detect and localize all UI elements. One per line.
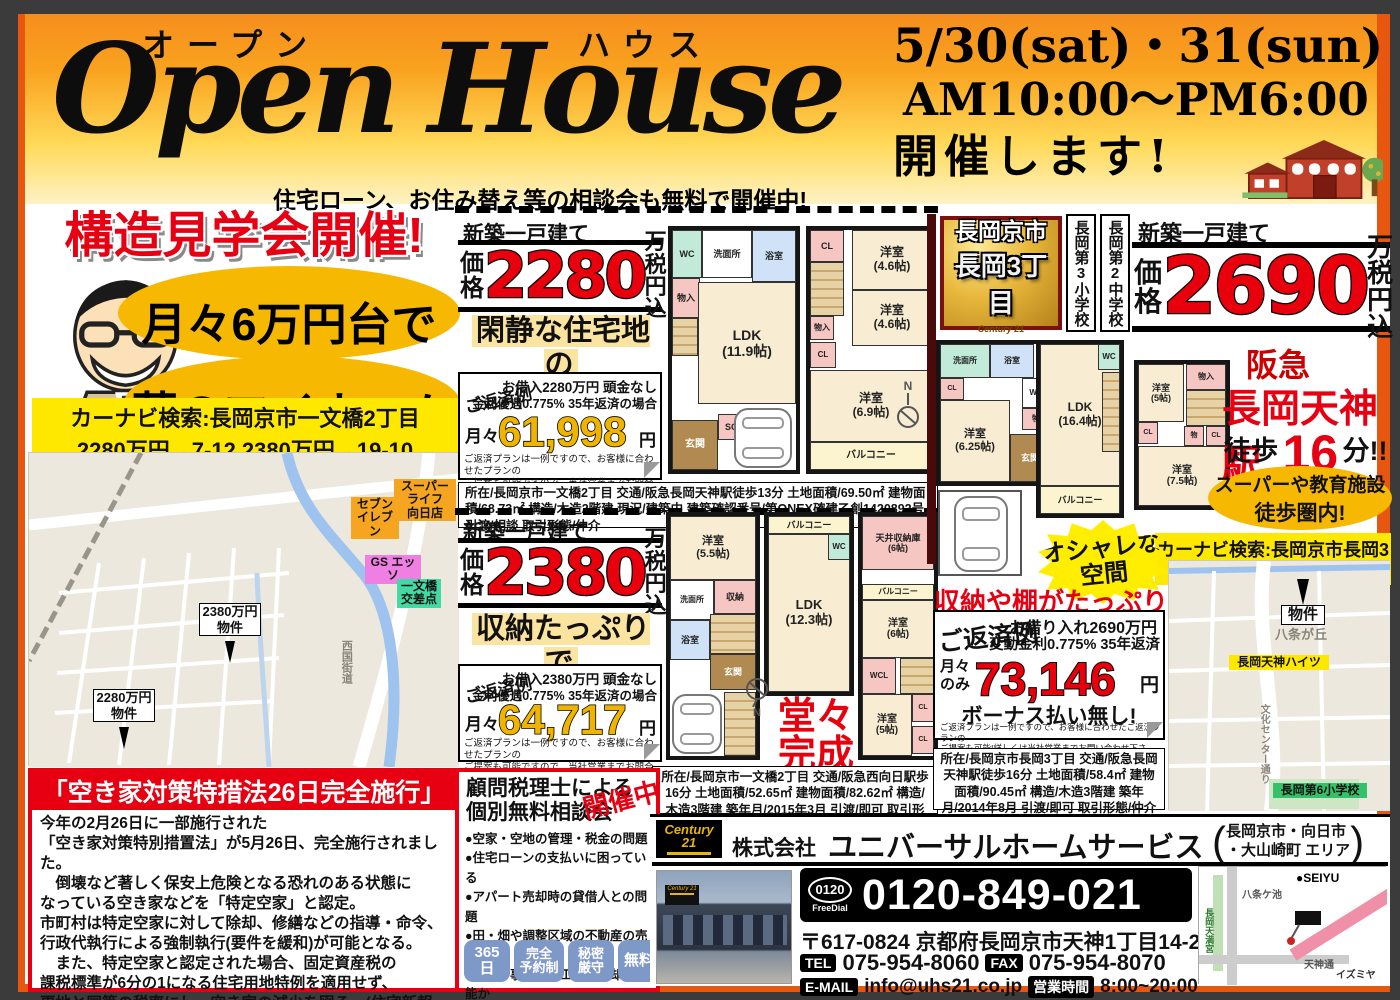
tax-bullet: ●空家・空地の管理・税金の問題 [465, 830, 650, 849]
p2-floorplan-left: 洋室 (5.5帖) 洗面所 収納 浴室 玄関 [666, 512, 760, 760]
floorplan-room: 浴室 [990, 344, 1034, 378]
house-icon [1233, 138, 1383, 205]
carnavi-box-1: カーナビ検索:長岡京市一文橋2丁目 2280万円→7-12 2380万円→19-… [32, 398, 458, 452]
vacant-house-article: 「空き家対策特措法26日完全施行」 今年の2月26日に一部施行された 「空き家対… [28, 768, 460, 992]
floorplan-room: 洋室 (4.6帖) [852, 290, 932, 346]
structure-tour-banner: 構造見学会開催! [28, 212, 460, 261]
century21-logo: Century 21 [656, 820, 722, 858]
p3-price-unit-1: 万税 [1367, 234, 1393, 287]
company-mini-map: ●SEIYU 八条ケ池 長岡天満宮 天神通 イズミヤ [1198, 866, 1386, 984]
floorplan-room: 洋室 (5帖) [862, 694, 912, 756]
badge-365: 365 日 [464, 940, 510, 982]
p3-area-line-1: 長岡京市 [955, 212, 1047, 246]
p2-price-block: 価格 2380 万税 円込 [458, 538, 662, 608]
dashed-divider [455, 206, 938, 213]
mini-map-seiyu: ●SEIYU [1293, 871, 1342, 886]
p2-price-label: 価格 [460, 548, 484, 598]
map-label-school6: 長岡第6小学校 [1273, 783, 1367, 798]
paren-close: ) [1350, 818, 1364, 866]
p2-price-units: 万税 円込 [645, 528, 667, 618]
header-time: AM10:00〜PM6:00 [903, 76, 1369, 123]
floorplan-stairs [672, 318, 698, 356]
map-label-seven-eleven: セブン イレブン [351, 497, 399, 539]
p2-monthly-amount: 64,717 [498, 696, 626, 744]
p3-super-copy: スーパーや教育施設 徒歩圏内! [1204, 470, 1396, 527]
company-area-text: 長岡京市・向日市 ・大山崎町 エリア [1226, 823, 1350, 861]
article-line: 倒壊など著しく保安上危険となる恐れのある状態に [40, 874, 448, 894]
area-map-nagaoka: 物件 八条が丘 長岡天神ハイツ 文化センター通り 長岡第6小学校 [1168, 560, 1389, 810]
floorplan-room: バルコニー [862, 584, 934, 600]
map-pin-icon-2280 [119, 727, 129, 749]
p3-price-value: 2690 [1162, 248, 1367, 326]
p3-super-line-1: スーパーや教育施設 [1204, 470, 1396, 497]
floorplan-room: バルコニー [810, 442, 932, 470]
p3-price-unit-2: 円込 [1367, 287, 1393, 340]
email-hours-row: E-MAIL info@uhs21.co.jp 営業時間 8:00~20:00 [800, 976, 1198, 998]
floorplan-room: 浴室 [670, 620, 710, 660]
floorplan-room: WC [672, 230, 702, 278]
map-label-super-life: スーパーライフ 向日店 [394, 479, 456, 521]
floorplan-stairs [1186, 390, 1226, 426]
floorplan-room: CL [912, 694, 934, 722]
floorplan-room: 洋室 (6.25帖) [940, 400, 1010, 482]
area-map-ichimonbashi: スーパーライフ 向日店 セブン イレブン GS エッソ 一文橋 交差点 西国街道… [28, 452, 458, 766]
floorplan-room: 洗面所 [702, 230, 752, 278]
floorplan-room: 洋室 (5.5帖) [670, 516, 756, 580]
floorplan-room: 物 [1184, 426, 1204, 446]
p2-details: 所在/長岡京市一文橋2丁目 交通/阪急西向日駅歩16分 土地面積/52.65㎡ … [652, 766, 938, 814]
hours-value: 8:00~20:00 [1100, 976, 1198, 998]
p3-monthly-amount: 73,146 [975, 652, 1116, 706]
floorplan-room: CL [940, 378, 964, 400]
article-line: また、特定空家と認定された場合、固定資産税の [40, 954, 448, 974]
map-label-road: 西国街道 [337, 639, 355, 685]
freedial-label: FreeDial [808, 903, 852, 913]
compass-icon: N [742, 676, 772, 720]
office-sign-text: Century 21 [665, 885, 699, 893]
floorplan-stairs [900, 658, 934, 694]
floorplan-room: 洋室 (5帖) [1138, 364, 1184, 422]
article-title: 「空き家対策特措法26日完全施行」 [32, 772, 456, 810]
page-curl-icon [644, 462, 660, 478]
p1-price-block: 価格 2280 万税 円込 [458, 240, 662, 312]
freedial-number: 0120-849-021 [862, 871, 1142, 920]
compass-n-label: N [904, 379, 913, 393]
p1-price-label: 価格 [460, 251, 484, 301]
mini-map-izumiya: イズミヤ [1333, 969, 1379, 982]
p1-loan-box: ご返済例 お借入2280万円 頭金なし 金利優遇0.775% 35年返済の場合 … [458, 372, 662, 480]
tax-bullet: ●住宅ローンの支払いに困っている [465, 849, 650, 888]
page-curl-icon [644, 744, 660, 760]
office-windows [663, 915, 787, 945]
frame-left-strip [18, 14, 25, 992]
map-roads-graphic [1169, 561, 1390, 811]
article-line: 市町村は特定空家に対して除却、修繕などの指導・命令、 [40, 914, 448, 934]
map-label-heights: 長岡天神ハイツ [1229, 655, 1329, 670]
map-label-street: 文化センター通り [1255, 689, 1272, 799]
floorplan-room: 天井収納庫 (6帖) [862, 516, 934, 570]
page-curl-icon [1147, 722, 1163, 738]
p2-floorplan-mid: バルコニー LDK (12.3帖) WC [764, 512, 854, 696]
fax-number: 075-954-8070 [1029, 950, 1166, 976]
p3-floorplan-2f: LDK (16.4帖) WC バルコニー [1036, 340, 1124, 518]
office-photo: Century 21 [656, 870, 792, 984]
map-label-crossing: 一文橋 交差点 [397, 579, 441, 608]
map-label-hachijo: 八条が丘 [1261, 627, 1341, 644]
mini-map-pond: 八条ケ池 [1239, 889, 1285, 902]
header-title-house: House [428, 28, 842, 152]
p2-monthly-yen: 円 [639, 714, 656, 739]
article-line: 今年の2月26日に一部施行された [40, 814, 448, 834]
p3-walk-pre: 徒歩 [1224, 436, 1278, 466]
p2-completed-label: 堂々 完成 [778, 698, 854, 774]
tax-advisor-box: 顧問税理士による 個別無料相談会 開催中 ●空家・空地の管理・税金の問題 ●住宅… [455, 768, 660, 992]
tel-badge: TEL [800, 954, 836, 972]
p2-floorplan-right: 天井収納庫 (6帖) バルコニー 洋室 (6帖) WCL 洋室 (5帖) CL … [858, 512, 938, 760]
header-date: 5/30(sat)・31(sun) [893, 22, 1383, 71]
floorplan-room: WCL [862, 658, 896, 694]
map-label-bukken: 物件 [1281, 605, 1325, 625]
floorplan-room: 洋室 (4.6帖) [852, 230, 932, 290]
compass-n-label: N [753, 707, 761, 719]
p1-price-value: 2280 [484, 245, 645, 307]
map-pin-label-2380: 2380万円 物件 [199, 603, 261, 636]
p3-loan-line-2: 変動金利0.775% 35年返済 [989, 633, 1160, 654]
p2-price-value: 2380 [484, 542, 645, 604]
floorplan-room: CL [912, 726, 934, 754]
floorplan-room: バルコニー [768, 516, 850, 534]
flyer-root: オープン Open ハウス House 5/30(sat)・31(sun) AM… [0, 0, 1400, 1000]
badge-reservation: 完全 予約制 [514, 940, 564, 982]
p3-school-elementary: 長岡第3小学校 [1066, 214, 1096, 332]
header-kaisai: 開催します! [893, 133, 1174, 180]
mini-map-street: 天神通 [1301, 959, 1337, 972]
floorplan-room: CL [810, 342, 836, 368]
fax-badge: FAX [985, 954, 1022, 972]
p3-price-label-text: 価格 [1134, 258, 1162, 317]
p3-walk-suf: 分!! [1343, 436, 1388, 466]
company-name-prefix: 株式会社 [732, 832, 816, 862]
office-sign: Century 21 [665, 885, 699, 905]
tel-number: 075-954-8060 [842, 950, 979, 976]
p3-price-block: 価格 2690 万税 円込 [1132, 242, 1390, 332]
map-pin-label-2280: 2280万円 物件 [93, 689, 155, 722]
p1-monthly-amount: 61,998 [498, 408, 626, 456]
article-line: なっている空き家などを「特定空家」と認定。 [40, 894, 448, 914]
floorplan-room: LDK (11.9帖) [698, 282, 796, 404]
floorplan-room: 洗面所 [670, 580, 714, 620]
map-pin-icon-bukken [1297, 579, 1309, 605]
p1-monthly-label: 月々 [465, 422, 499, 447]
floorplan-room: WC [1098, 344, 1120, 370]
p3-area-badge: 長岡京市 長岡3丁目 Century 21 [940, 216, 1062, 330]
century21-small-logo: Century 21 [978, 324, 1025, 334]
car-icon [954, 496, 1008, 572]
floorplan-room: CL [810, 230, 844, 262]
article-line: 「空き家対策特別措置法」が5月26日、完全施行されました。 [40, 834, 448, 874]
car-icon [734, 408, 792, 468]
company-name: ユニバーサルホームサービス [828, 824, 1204, 866]
floorplan-room: 収納 [714, 580, 756, 614]
p3-school-junior-high: 長岡第2中学校 [1100, 214, 1130, 332]
car-icon [672, 694, 722, 754]
p3-price-units: 万税 円込 [1367, 234, 1393, 340]
p3-price-label: 価格 [1134, 258, 1162, 317]
freedial-bar: 0120 FreeDial 0120-849-021 [800, 868, 1192, 922]
tax-bullet: ●アパート売却時の貸借人との問題 [465, 888, 650, 927]
p2-monthly-label: 月々 [465, 710, 499, 735]
p1-price-unit-1: 万税 [645, 231, 667, 276]
floorplan-stairs [1102, 372, 1120, 452]
email-address: info@uhs21.co.jp [864, 976, 1022, 998]
hours-badge: 営業時間 [1028, 976, 1094, 998]
tax-badges-row: 365 日 完全 予約制 秘密 厳守 無料 [464, 940, 660, 982]
paren-open: ( [1212, 818, 1226, 866]
mini-map-shrine: 長岡天満宮 [1201, 895, 1217, 965]
header-title-open: Open [52, 28, 396, 152]
floorplan-room: WC [828, 534, 850, 560]
p1-floorplan-2f: CL 洋室 (4.6帖) 物入 洋室 (4.6帖) CL 洋室 (6.9帖) バ… [806, 226, 936, 474]
article-line: 更地と同等の税率にし、空き家の減少を図る。(住宅新報より) [40, 994, 448, 1000]
floorplan-room: 浴室 [752, 230, 796, 282]
century21-logo-text: Century 21 [656, 823, 722, 849]
p3-details: 所在/長岡京市長岡3丁目 交通/阪急長岡天神駅徒歩16分 土地面積/58.4㎡ … [933, 748, 1165, 810]
p3-super-line-2: 徒歩圏内! [1204, 497, 1396, 527]
map-pin-icon-2380 [225, 641, 235, 663]
floorplan-room: 物入 [1186, 364, 1226, 390]
p3-monthly-yen: 円 [1140, 670, 1159, 697]
p1-monthly-yen: 円 [639, 426, 656, 451]
p2-loan-box: ご返済例 お借入2380万円 頭金なし 金利優遇0.775% 35年返済の場合 … [458, 664, 662, 762]
section-divider-bar [927, 214, 936, 564]
p3-parking-box [938, 490, 1022, 576]
article-line: 行政代執行による強制執行(要件を緩和)が可能となる。 [40, 934, 448, 954]
p3-monthly-label: 月々 のみ [940, 658, 970, 694]
p2-price-unit-1: 万税 [645, 528, 667, 573]
p1-price-label-text: 価格 [460, 251, 484, 301]
article-line: 課税標準が6分の1になる住宅用地特例を適用せず、 [40, 974, 448, 994]
freedial-0120: 0120 [808, 877, 852, 903]
floorplan-stairs [710, 614, 756, 654]
tel-fax-row: TEL 075-954-8060 FAX 075-954-8070 [800, 950, 1166, 976]
floorplan-room: 物入 [810, 316, 834, 340]
freedial-icon: 0120 FreeDial [808, 877, 852, 913]
dream-line-1: 月々6万円台で [118, 288, 460, 353]
floorplan-room: 物入 [672, 278, 700, 318]
carnavi-line-1: カーナビ検索:長岡京市一文橋2丁目 [32, 401, 458, 433]
p1-price-units: 万税 円込 [645, 231, 667, 321]
floorplan-room: 洋室 (6帖) [862, 600, 934, 658]
floorplan-stairs [810, 262, 844, 316]
badge-secret: 秘密 厳守 [568, 940, 614, 982]
floorplan-room: バルコニー [1040, 486, 1120, 514]
p1-floorplan-1f: WC 洗面所 浴室 物入 LDK (11.9帖) 玄関 SCL [668, 226, 800, 474]
email-badge: E-MAIL [800, 978, 858, 996]
compass-icon: N [893, 378, 923, 430]
company-area: ( 長岡京市・向日市 ・大山崎町 エリア ) [1212, 818, 1364, 866]
p3-area-line-2: 長岡3丁目 [944, 246, 1058, 320]
floorplan-room: CL [1138, 422, 1158, 444]
floorplan-room: 玄関 [672, 420, 718, 470]
article-body: 今年の2月26日に一部施行された 「空き家対策特別措置法」が5月26日、完全施行… [32, 810, 456, 1000]
p3-loan-box: ご返済例 お借り入れ2690万円 変動金利0.775% 35年返済 月々 のみ … [933, 610, 1165, 740]
p2-price-label-text: 価格 [460, 548, 484, 598]
floorplan-room: 洗面所 [940, 344, 990, 378]
